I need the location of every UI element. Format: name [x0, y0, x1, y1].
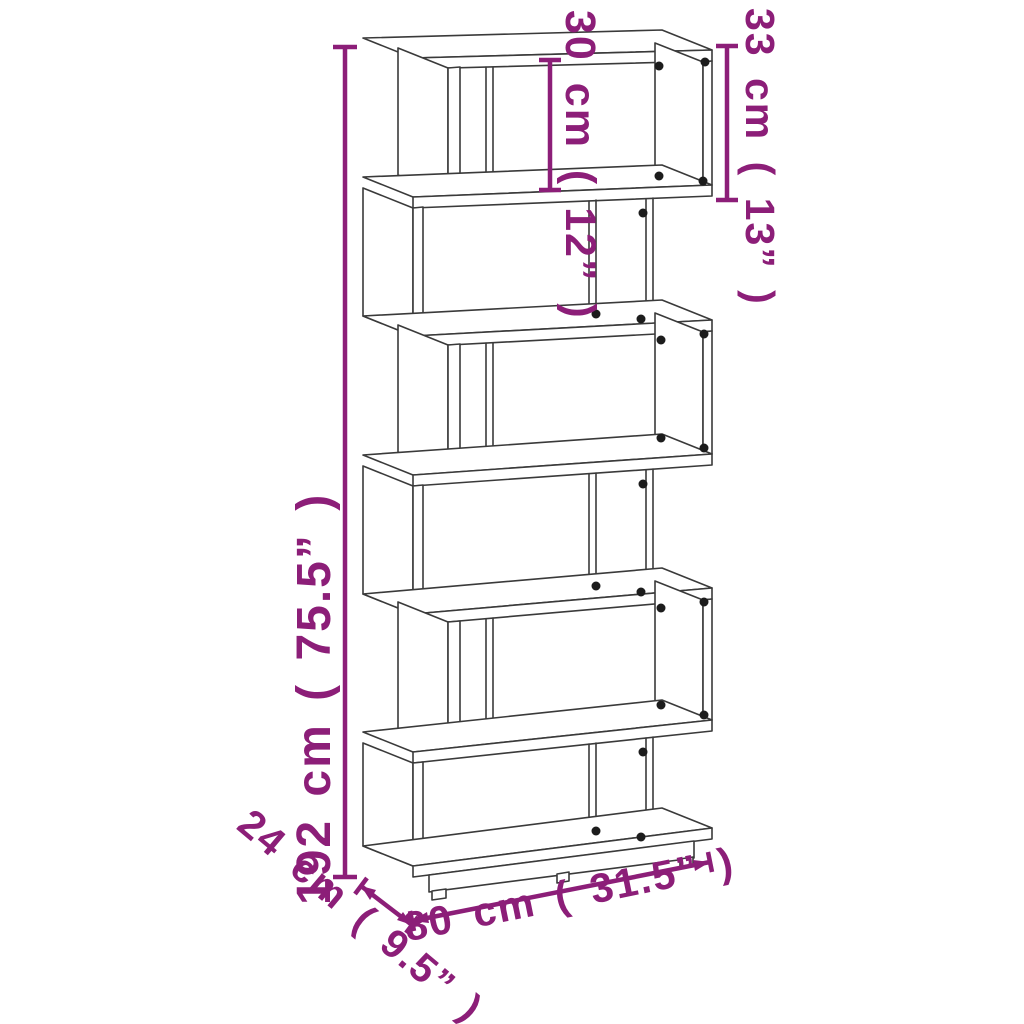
bookcase-line-drawing [363, 30, 712, 900]
bookcase-diagram-svg: 30 cm ( 12” ) 33 cm ( 13” ) 192 cm ( 75.… [0, 0, 1024, 1024]
dimension-diagram: 30 cm ( 12” ) 33 cm ( 13” ) 192 cm ( 75.… [0, 0, 1024, 1024]
inner-height-label: 30 cm ( 12” ) [556, 10, 604, 320]
tier-height-label: 33 cm ( 13” ) [737, 8, 783, 306]
tier-height-dimension-line [716, 46, 738, 200]
